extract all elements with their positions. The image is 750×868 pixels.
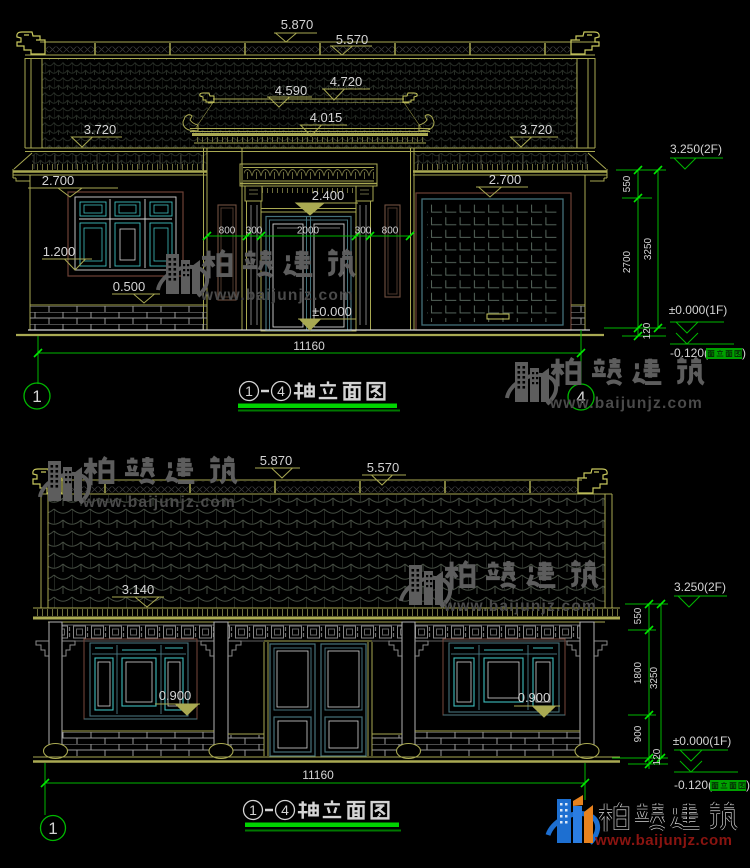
svg-text:800: 800 (382, 226, 399, 237)
svg-text:1: 1 (245, 383, 253, 399)
svg-text:2700: 2700 (622, 250, 633, 273)
svg-text:2000: 2000 (297, 226, 320, 237)
svg-text:): ) (742, 346, 746, 360)
svg-text:-0.120(: -0.120( (674, 778, 712, 792)
svg-text:3.720: 3.720 (84, 122, 117, 137)
svg-text:1: 1 (48, 819, 57, 838)
svg-text:2.400: 2.400 (312, 188, 345, 203)
svg-text:5.870: 5.870 (281, 17, 314, 32)
svg-text:): ) (746, 778, 750, 792)
svg-text:5.570: 5.570 (336, 32, 369, 47)
svg-text:4.590: 4.590 (275, 83, 308, 98)
svg-text:www.baijunjz.com: www.baijunjz.com (200, 287, 354, 304)
svg-text:3.250(2F): 3.250(2F) (670, 142, 722, 156)
svg-text:±0.000(1F): ±0.000(1F) (669, 303, 728, 317)
svg-text:www.baijunjz.com: www.baijunjz.com (549, 395, 703, 412)
svg-text:4: 4 (277, 383, 285, 399)
svg-text:2.700: 2.700 (489, 172, 522, 187)
svg-text:3.140: 3.140 (122, 582, 155, 597)
svg-text:www.baijunjz.com: www.baijunjz.com (82, 494, 236, 511)
svg-text:4.015: 4.015 (310, 110, 343, 125)
svg-text:www.baijunjz.com: www.baijunjz.com (594, 832, 732, 849)
svg-text:±0.000(1F): ±0.000(1F) (673, 734, 732, 748)
svg-text:www.baijunjz.com: www.baijunjz.com (443, 598, 597, 615)
svg-text:-0.120(: -0.120( (670, 346, 708, 360)
svg-text:1: 1 (32, 387, 41, 406)
svg-text:11160: 11160 (302, 768, 334, 782)
svg-text:5.870: 5.870 (260, 453, 293, 468)
svg-text:0.900: 0.900 (518, 690, 551, 705)
svg-text:300: 300 (355, 226, 372, 237)
svg-text:4: 4 (281, 802, 289, 818)
svg-text:3250: 3250 (649, 666, 660, 689)
svg-text:3.250(2F): 3.250(2F) (674, 580, 726, 594)
svg-text:300: 300 (246, 226, 263, 237)
svg-text:900: 900 (633, 725, 644, 742)
svg-text:1800: 1800 (633, 661, 644, 684)
svg-text:550: 550 (622, 175, 633, 192)
svg-text:120: 120 (642, 322, 653, 339)
svg-text:5.570: 5.570 (367, 460, 400, 475)
svg-text:0.900: 0.900 (159, 688, 192, 703)
svg-text:2.700: 2.700 (42, 173, 75, 188)
svg-text:4.720: 4.720 (330, 74, 363, 89)
svg-text:550: 550 (633, 607, 644, 624)
svg-text:±0.000: ±0.000 (312, 304, 352, 319)
svg-text:1: 1 (249, 802, 257, 818)
svg-text:800: 800 (219, 226, 236, 237)
svg-text:11160: 11160 (293, 339, 325, 353)
svg-text:3250: 3250 (643, 237, 654, 260)
svg-text:3.720: 3.720 (520, 122, 553, 137)
svg-text:1.200: 1.200 (43, 244, 76, 259)
svg-text:0.500: 0.500 (113, 279, 146, 294)
svg-text:120: 120 (652, 748, 663, 765)
